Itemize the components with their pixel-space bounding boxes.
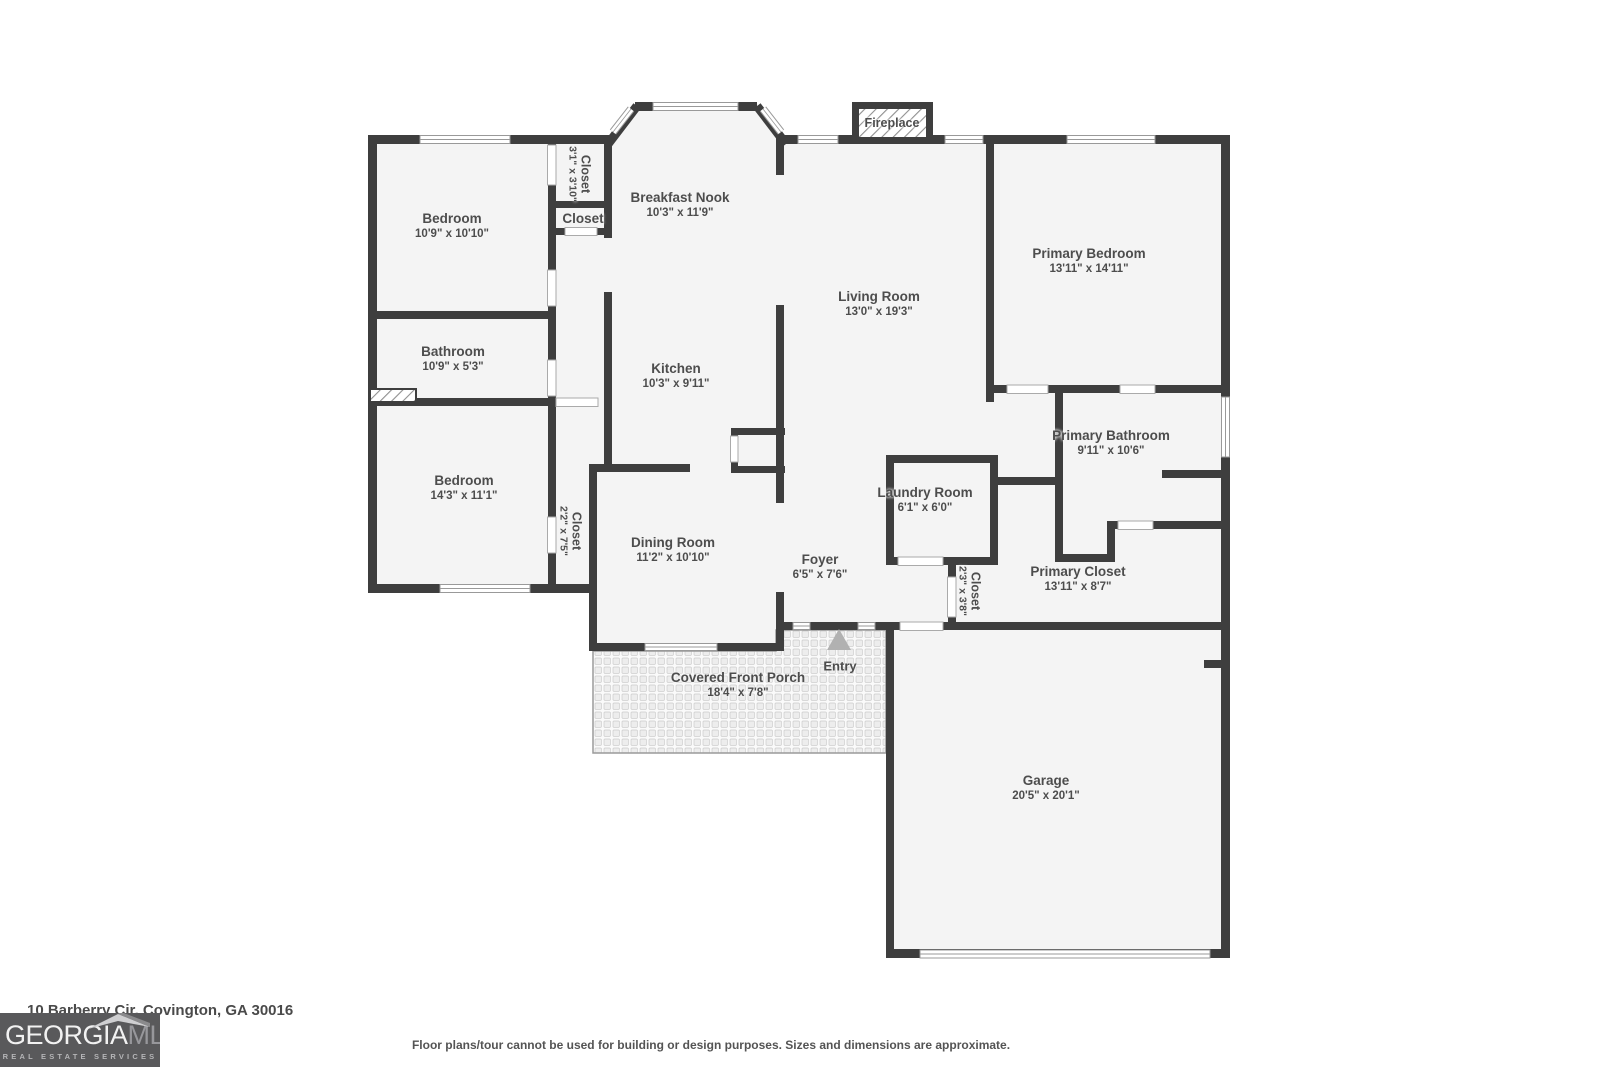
room-label-primary-bathroom: Primary Bathroom 9'11" x 10'6" <box>1052 428 1170 458</box>
room-label-kitchen: Kitchen 10'3" x 9'11" <box>643 361 710 391</box>
room-name: Bathroom <box>421 344 485 360</box>
logo-roof-icon <box>88 1013 152 1030</box>
room-name: Kitchen <box>643 361 710 377</box>
room-name: Closet <box>969 566 983 616</box>
room-label-closet-3: Closet 2'2" x 7'5" <box>557 506 584 556</box>
room-name: Laundry Room <box>877 485 972 501</box>
room-name: Primary Bathroom <box>1052 428 1170 444</box>
room-name: Closet <box>579 146 593 202</box>
room-floor-fills <box>368 103 1230 958</box>
entry-label: Entry <box>823 659 856 674</box>
room-name: Covered Front Porch <box>671 670 805 686</box>
room-label-laundry-room: Laundry Room 6'1" x 6'0" <box>877 485 972 515</box>
room-name: Bedroom <box>415 211 489 227</box>
room-dims: 10'9" x 10'10" <box>415 227 489 241</box>
room-dims: 13'11" x 14'11" <box>1032 262 1145 276</box>
room-label-closet-2: Closet <box>562 211 603 227</box>
room-name: Living Room <box>838 289 920 305</box>
room-label-primary-bedroom: Primary Bedroom 13'11" x 14'11" <box>1032 246 1145 276</box>
room-label-garage: Garage 20'5" x 20'1" <box>1012 773 1080 803</box>
room-dims: 13'0" x 19'3" <box>838 305 920 319</box>
logo-tagline: REAL ESTATE SERVICES <box>0 1052 160 1061</box>
room-dims: 2'3" x 3'8" <box>956 566 969 616</box>
room-dims: 6'1" x 6'0" <box>877 501 972 515</box>
room-dims: 3'1" x 3'10" <box>566 146 579 202</box>
room-name: Dining Room <box>631 535 715 551</box>
room-name: Closet <box>562 211 603 227</box>
room-dims: 11'2" x 10'10" <box>631 551 715 565</box>
room-label-bedroom-2: Bedroom 14'3" x 11'1" <box>431 473 498 503</box>
room-dims: 13'11" x 8'7" <box>1030 580 1125 594</box>
room-dims: 20'5" x 20'1" <box>1012 789 1080 803</box>
disclaimer-text: Floor plans/tour cannot be used for buil… <box>412 1038 1010 1052</box>
room-label-bathroom: Bathroom 10'9" x 5'3" <box>421 344 485 374</box>
fireplace-label: Fireplace <box>865 116 920 130</box>
room-name: Closet <box>570 506 584 556</box>
room-label-foyer: Foyer 6'5" x 7'6" <box>793 552 848 582</box>
room-label-dining-room: Dining Room 11'2" x 10'10" <box>631 535 715 565</box>
room-dims: 10'3" x 9'11" <box>643 377 710 391</box>
room-dims: 9'11" x 10'6" <box>1052 444 1170 458</box>
floor-plan-drawing <box>0 0 1600 1067</box>
room-name: Bedroom <box>431 473 498 489</box>
room-name: Foyer <box>793 552 848 568</box>
bathroom-hatch-fixture <box>370 389 416 402</box>
room-label-living-room: Living Room 13'0" x 19'3" <box>838 289 920 319</box>
room-name: Primary Bedroom <box>1032 246 1145 262</box>
room-label-closet-4: Closet 2'3" x 3'8" <box>956 566 983 616</box>
room-dims: 2'2" x 7'5" <box>557 506 570 556</box>
room-label-bedroom-1: Bedroom 10'9" x 10'10" <box>415 211 489 241</box>
georgia-mls-logo: GEORGIAMLS REAL ESTATE SERVICES <box>0 1013 160 1067</box>
room-name: Primary Closet <box>1030 564 1125 580</box>
room-dims: 10'3" x 11'9" <box>630 206 729 220</box>
room-dims: 6'5" x 7'6" <box>793 568 848 582</box>
room-label-closet-1: Closet 3'1" x 3'10" <box>566 146 593 202</box>
room-name: Garage <box>1012 773 1080 789</box>
room-label-primary-closet: Primary Closet 13'11" x 8'7" <box>1030 564 1125 594</box>
room-dims: 10'9" x 5'3" <box>421 360 485 374</box>
room-dims: 18'4" x 7'8" <box>671 686 805 700</box>
room-label-breakfast-nook: Breakfast Nook 10'3" x 11'9" <box>630 190 729 220</box>
room-name: Breakfast Nook <box>630 190 729 206</box>
floor-plan-page: Bedroom 10'9" x 10'10" Closet 3'1" x 3'1… <box>0 0 1600 1067</box>
room-dims: 14'3" x 11'1" <box>431 489 498 503</box>
room-label-covered-front-porch: Covered Front Porch 18'4" x 7'8" <box>671 670 805 700</box>
